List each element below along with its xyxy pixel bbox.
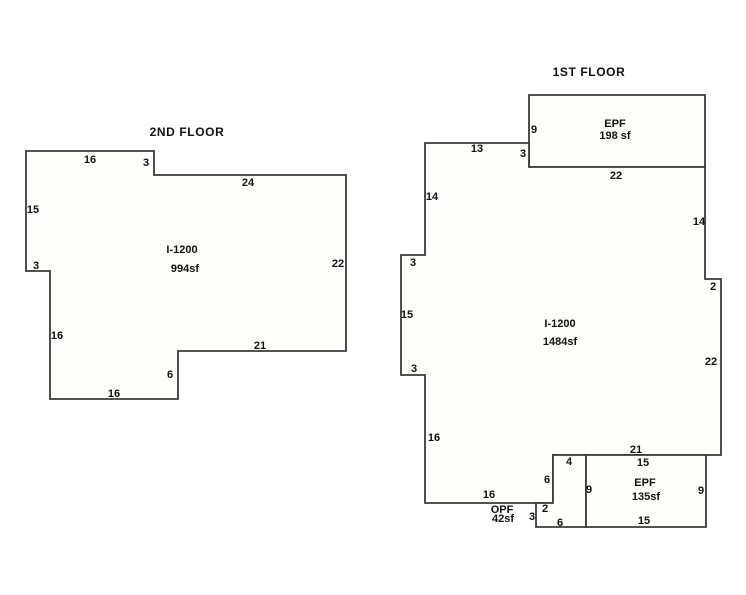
dimension-label-first-floor: 6 bbox=[544, 474, 550, 486]
dimension-label-first-floor: 13 bbox=[471, 143, 483, 155]
floor-group-first-floor: 1ST FLOOREPF198 sfI-12001484sfOPF42sfEPF… bbox=[401, 65, 721, 529]
dimension-label-first-floor: 14 bbox=[426, 191, 439, 203]
area-label-first-floor: I-1200 bbox=[544, 318, 575, 330]
floor-group-second-floor: 2ND FLOORI-1200994sf16324222161616315 bbox=[26, 125, 346, 400]
second-floor-outline bbox=[26, 151, 346, 399]
dimension-label-first-floor: 16 bbox=[483, 489, 495, 501]
area-label-first-floor: EPF bbox=[634, 477, 656, 489]
dimension-label-first-floor: 15 bbox=[638, 515, 650, 527]
dimension-label-first-floor: 15 bbox=[637, 457, 649, 469]
dimension-label-second-floor: 15 bbox=[27, 204, 39, 216]
dimension-label-first-floor: 16 bbox=[428, 432, 440, 444]
dimension-label-first-floor: 21 bbox=[630, 444, 642, 456]
dimension-label-first-floor: 22 bbox=[705, 356, 717, 368]
dimension-label-first-floor: 6 bbox=[557, 517, 563, 529]
dimension-label-first-floor: 4 bbox=[566, 456, 573, 468]
dimension-label-second-floor: 22 bbox=[332, 258, 344, 270]
dimension-label-first-floor: 22 bbox=[610, 170, 622, 182]
floor-title-first-floor: 1ST FLOOR bbox=[553, 65, 626, 79]
area-label-second-floor: 994sf bbox=[171, 263, 199, 275]
dimension-label-second-floor: 21 bbox=[254, 340, 266, 352]
dimension-label-second-floor: 16 bbox=[51, 330, 63, 342]
area-label-first-floor: 1484sf bbox=[543, 336, 578, 348]
area-label-first-floor: EPF bbox=[604, 118, 626, 130]
dimension-label-first-floor: 3 bbox=[529, 511, 535, 523]
floor-plan-sketch-page: 2ND FLOORI-1200994sf163242221616163151ST… bbox=[0, 0, 746, 595]
dimension-label-first-floor: 9 bbox=[698, 485, 704, 497]
floor-title-second-floor: 2ND FLOOR bbox=[150, 125, 225, 139]
dimension-label-first-floor: 3 bbox=[410, 257, 416, 269]
dimension-label-second-floor: 16 bbox=[108, 388, 120, 400]
dimension-label-first-floor: 3 bbox=[411, 363, 417, 375]
area-label-first-floor: 42sf bbox=[492, 513, 514, 525]
dimension-label-first-floor: 15 bbox=[401, 309, 413, 321]
dimension-label-first-floor: 2 bbox=[710, 281, 716, 293]
dimension-label-first-floor: 14 bbox=[693, 216, 706, 228]
dimension-label-second-floor: 3 bbox=[33, 260, 39, 272]
area-label-second-floor: I-1200 bbox=[166, 244, 197, 256]
dimension-label-first-floor: 2 bbox=[542, 503, 548, 515]
dimension-label-second-floor: 24 bbox=[242, 177, 255, 189]
area-label-first-floor: 135sf bbox=[632, 491, 660, 503]
dimension-label-second-floor: 16 bbox=[84, 154, 96, 166]
area-label-first-floor: 198 sf bbox=[599, 130, 631, 142]
dimension-label-first-floor: 9 bbox=[531, 124, 537, 136]
floor-sketch-canvas: 2ND FLOORI-1200994sf163242221616163151ST… bbox=[0, 0, 746, 595]
dimension-label-first-floor: 9 bbox=[586, 484, 592, 496]
dimension-label-first-floor: 3 bbox=[520, 148, 526, 160]
dimension-label-second-floor: 3 bbox=[143, 157, 149, 169]
dimension-label-second-floor: 6 bbox=[167, 369, 173, 381]
